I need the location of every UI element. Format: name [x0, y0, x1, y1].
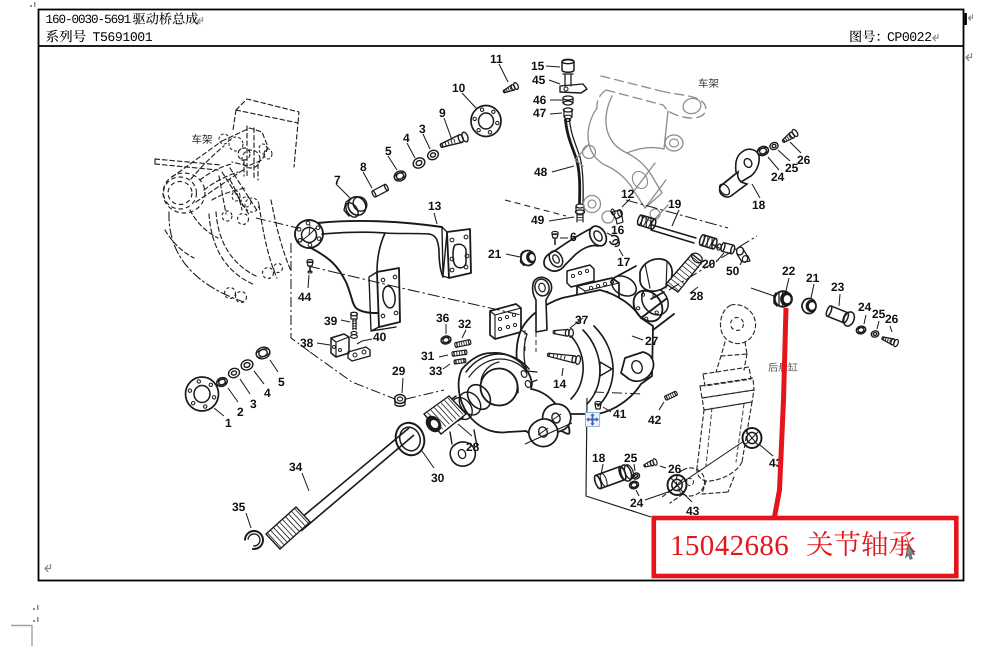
svg-text:39: 39 [324, 314, 338, 328]
svg-text:11: 11 [490, 52, 503, 66]
svg-text:4: 4 [403, 131, 410, 145]
svg-text:13: 13 [428, 199, 442, 213]
svg-text:28: 28 [466, 440, 480, 454]
svg-text:26: 26 [885, 312, 899, 326]
svg-text:34: 34 [289, 460, 303, 474]
svg-text:44: 44 [298, 290, 312, 304]
svg-text:26: 26 [668, 462, 682, 476]
svg-text:24: 24 [630, 496, 644, 510]
svg-text:28: 28 [690, 289, 704, 303]
svg-text:14: 14 [553, 377, 567, 391]
svg-text:21: 21 [488, 247, 502, 261]
svg-text:41: 41 [613, 407, 627, 421]
svg-text:45: 45 [532, 73, 546, 87]
svg-text:37: 37 [575, 313, 589, 327]
svg-text:42: 42 [648, 413, 662, 427]
svg-text:T5691001: T5691001 [93, 30, 153, 45]
svg-text:46: 46 [533, 93, 547, 107]
svg-text:3: 3 [250, 397, 257, 411]
svg-text:40: 40 [373, 330, 387, 344]
svg-text:18: 18 [592, 451, 606, 465]
svg-text:9: 9 [439, 106, 446, 120]
svg-text:18: 18 [752, 198, 766, 212]
svg-text:6: 6 [570, 230, 577, 244]
svg-text:33: 33 [429, 364, 443, 378]
svg-text:47: 47 [533, 106, 547, 120]
svg-text:24: 24 [858, 300, 872, 314]
svg-text:15: 15 [531, 59, 545, 73]
svg-text:2: 2 [237, 405, 244, 419]
svg-text:CP0022: CP0022 [887, 30, 931, 45]
svg-text:48: 48 [534, 165, 548, 179]
svg-text:160-0030-5691: 160-0030-5691 [46, 13, 131, 27]
svg-text:15042686: 15042686 [670, 530, 789, 562]
svg-text:5: 5 [385, 144, 392, 158]
svg-text:4: 4 [264, 386, 271, 400]
svg-text:36: 36 [436, 311, 450, 325]
svg-text:22: 22 [782, 264, 796, 278]
svg-text:50: 50 [726, 264, 740, 278]
svg-text:17: 17 [617, 255, 631, 269]
svg-text:32: 32 [458, 317, 472, 331]
svg-text:8: 8 [360, 160, 367, 174]
svg-text:19: 19 [668, 197, 682, 211]
svg-text:25: 25 [624, 451, 638, 465]
svg-text:21: 21 [806, 271, 820, 285]
svg-text:7: 7 [334, 173, 341, 187]
svg-text:10: 10 [452, 81, 466, 95]
svg-text:24: 24 [771, 170, 785, 184]
svg-text:5: 5 [278, 375, 285, 389]
svg-text:1: 1 [225, 416, 232, 430]
svg-text:16: 16 [611, 223, 625, 237]
svg-text:27: 27 [645, 334, 659, 348]
svg-text:49: 49 [531, 213, 545, 227]
svg-text:23: 23 [831, 280, 845, 294]
svg-text:38: 38 [300, 336, 314, 350]
svg-text:30: 30 [431, 471, 445, 485]
svg-text:29: 29 [392, 364, 406, 378]
svg-text:26: 26 [797, 153, 811, 167]
svg-text:35: 35 [232, 500, 246, 514]
svg-text:20: 20 [702, 257, 716, 271]
svg-text:3: 3 [419, 122, 426, 136]
svg-text:12: 12 [621, 187, 635, 201]
svg-text:25: 25 [872, 307, 886, 321]
svg-text:31: 31 [421, 349, 435, 363]
